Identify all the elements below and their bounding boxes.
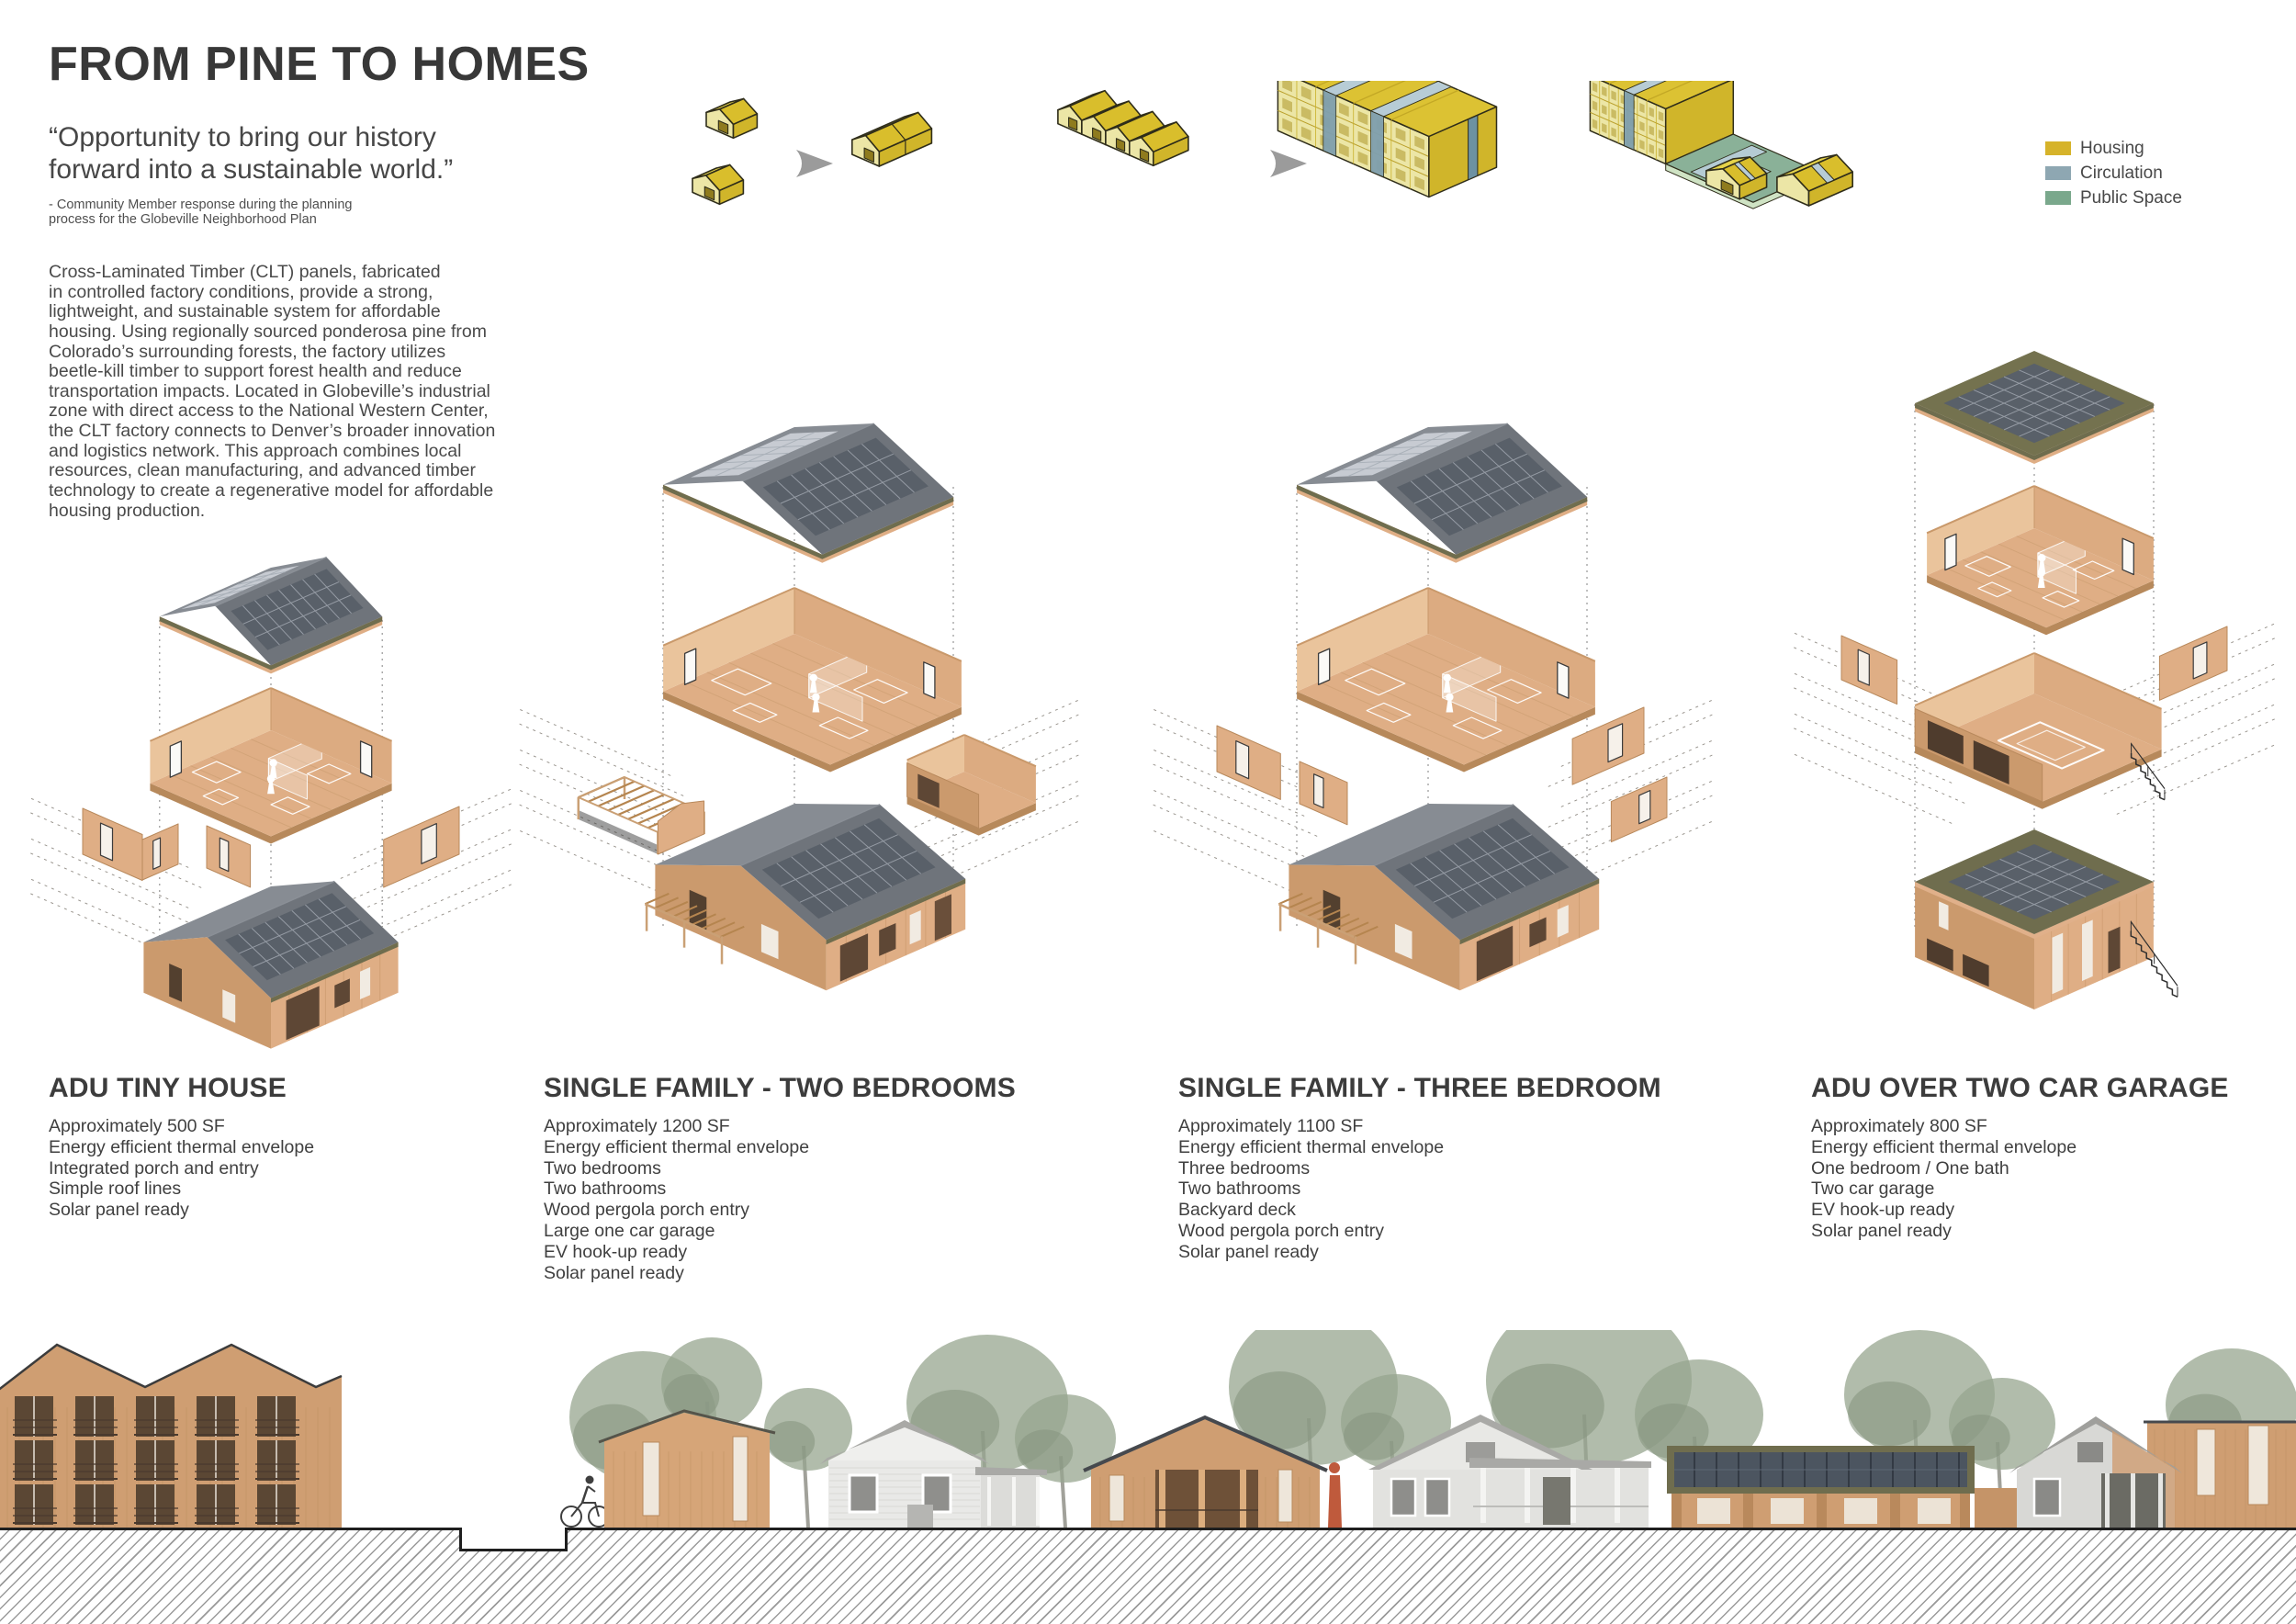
- wall-panel: [1300, 761, 1347, 825]
- window-slot: [1844, 1498, 1877, 1524]
- spec-line: Energy efficient thermal envelope: [1811, 1138, 2077, 1158]
- spec-line: Integrated porch and entry: [49, 1159, 314, 1179]
- community-quote: “Opportunity to bring our history forwar…: [49, 121, 453, 186]
- window: [1391, 1479, 1415, 1516]
- spec-line: Wood pergola porch entry: [544, 1201, 809, 1221]
- arrow-icon: [796, 150, 833, 177]
- spec-line: EV hook-up ready: [544, 1243, 809, 1263]
- flat-roof-panel: [1915, 351, 2154, 464]
- spec-line: Approximately 800 SF: [1811, 1117, 2077, 1137]
- roof-panel: [1297, 423, 1587, 563]
- door: [1543, 1477, 1570, 1525]
- spec-line: Approximately 1100 SF: [1178, 1117, 1444, 1137]
- tree-icon: [766, 1421, 815, 1462]
- heading-adu-over-two-car-garage: ADU OVER TWO CAR GARAGE: [1811, 1073, 2229, 1104]
- floor-module: [1297, 588, 1595, 773]
- cyclist: [561, 1476, 609, 1528]
- floor-module: [150, 688, 391, 844]
- spec-line: Solar panel ready: [1811, 1222, 2077, 1242]
- wall-panel: [142, 824, 178, 880]
- window: [1425, 1479, 1449, 1516]
- circulation-swatch-icon: [2045, 166, 2071, 180]
- legend-label: Circulation: [2080, 164, 2163, 184]
- exploded-axon-single-family-three-bedroom: [1153, 413, 1713, 1056]
- massing-house: [706, 99, 757, 139]
- garage-module: [1915, 653, 2165, 809]
- window: [2034, 1479, 2060, 1516]
- heading-single-family-three-bedroom: SINGLE FAMILY - THREE BEDROOM: [1178, 1073, 1661, 1104]
- wall-panel: [384, 806, 459, 887]
- spec-line: Three bedrooms: [1178, 1159, 1444, 1179]
- wall-panel: [207, 826, 251, 887]
- heading-single-family-two-bedrooms: SINGLE FAMILY - TWO BEDROOMS: [544, 1073, 1016, 1104]
- assembled-garage-adu: [1915, 829, 2178, 1009]
- legend-label: Public Space: [2080, 188, 2182, 209]
- spec-line: Energy efficient thermal envelope: [1178, 1138, 1444, 1158]
- window-slot: [1697, 1498, 1730, 1524]
- presentation-board: FROM PINE TO HOMES “Opportunity to bring…: [0, 0, 2296, 1624]
- exploded-axon-adu-over-two-car-garage: [1791, 340, 2278, 1047]
- specs-adu-tiny-house: Approximately 500 SF Energy efficient th…: [49, 1117, 314, 1222]
- window-slot: [2197, 1429, 2215, 1495]
- pergola-porch-module: [579, 777, 704, 854]
- roof-panel: [663, 423, 953, 563]
- wall-panel: [1841, 636, 1897, 705]
- assembled-house: [1278, 804, 1599, 990]
- window-slot: [1278, 1470, 1292, 1522]
- garage-room-module: [907, 735, 1036, 836]
- massing-block: [1277, 81, 1496, 197]
- window-slot: [1109, 1475, 1124, 1521]
- spec-line: Large one car garage: [544, 1222, 809, 1242]
- legend-row-housing: Housing: [2045, 136, 2182, 161]
- spec-line: Energy efficient thermal envelope: [544, 1138, 809, 1158]
- spec-line: Solar panel ready: [1178, 1243, 1444, 1263]
- window: [850, 1475, 877, 1512]
- page-title: FROM PINE TO HOMES: [49, 37, 590, 92]
- floor-module: [1927, 486, 2154, 635]
- spec-line: Solar panel ready: [49, 1201, 314, 1221]
- specs-adu-over-two-car-garage: Approximately 800 SF Energy efficient th…: [1811, 1117, 2077, 1243]
- massing-sequence-diagram: [675, 81, 1961, 301]
- tree-icon: [1848, 1382, 1930, 1446]
- spec-line: Approximately 1200 SF: [544, 1117, 809, 1137]
- ground-hatch: [0, 1528, 2296, 1624]
- spec-line: Backyard deck: [1178, 1201, 1444, 1221]
- person-figure: [1328, 1462, 1342, 1528]
- window-slot: [1771, 1498, 1804, 1524]
- spec-line: Solar panel ready: [544, 1264, 809, 1284]
- spec-line: Two bathrooms: [544, 1179, 809, 1200]
- wall-panel: [83, 808, 142, 881]
- spec-line: Wood pergola porch entry: [1178, 1222, 1444, 1242]
- legend-row-circulation: Circulation: [2045, 161, 2182, 186]
- public-space-swatch-icon: [2045, 191, 2071, 205]
- spec-line: Approximately 500 SF: [49, 1117, 314, 1137]
- window-slot: [1918, 1498, 1951, 1524]
- spec-line: One bedroom / One bath: [1811, 1159, 2077, 1179]
- housing-swatch-icon: [2045, 141, 2071, 155]
- massing-house: [852, 113, 932, 167]
- spec-line: EV hook-up ready: [1811, 1201, 2077, 1221]
- spec-line: Two bedrooms: [544, 1159, 809, 1179]
- window-slot: [2248, 1426, 2268, 1505]
- heading-adu-tiny-house: ADU TINY HOUSE: [49, 1073, 287, 1104]
- ac-unit: [907, 1505, 933, 1528]
- clt-description: Cross-Laminated Timber (CLT) panels, fab…: [49, 263, 545, 521]
- legend-label: Housing: [2080, 139, 2144, 159]
- wall-panel: [2159, 626, 2227, 700]
- specs-single-family-three-bedroom: Approximately 1100 SF Energy efficient t…: [1178, 1117, 1444, 1264]
- attic-window: [2077, 1442, 2103, 1462]
- floor-module: [663, 588, 962, 773]
- quote-attribution: - Community Member response during the p…: [49, 198, 352, 228]
- legend-row-public-space: Public Space: [2045, 186, 2182, 210]
- exploded-axon-adu-tiny-house: [28, 551, 514, 1066]
- spec-line: Two car garage: [1811, 1179, 2077, 1200]
- wall-panel: [1611, 777, 1667, 842]
- massing-house: [692, 165, 743, 205]
- spec-line: Simple roof lines: [49, 1179, 314, 1200]
- flat-solar-building: [1667, 1446, 2025, 1528]
- roof-panel: [160, 558, 382, 674]
- assembled-house: [143, 881, 398, 1048]
- exploded-axon-single-family-two-bedrooms: [519, 413, 1079, 1056]
- specs-single-family-two-bedrooms: Approximately 1200 SF Energy efficient t…: [544, 1117, 809, 1285]
- tree-icon: [1018, 1429, 1074, 1473]
- spec-line: Energy efficient thermal envelope: [49, 1138, 314, 1158]
- legend: Housing Circulation Public Space: [2045, 136, 2182, 210]
- street-elevation: [0, 1330, 2296, 1532]
- clt-apartment-building: [0, 1345, 342, 1528]
- spec-line: Two bathrooms: [1178, 1179, 1444, 1200]
- window-slot: [643, 1442, 659, 1516]
- arrow-icon: [1270, 150, 1307, 177]
- window-slot: [733, 1437, 748, 1521]
- tree-icon: [1344, 1413, 1404, 1460]
- wall-panel: [1217, 726, 1280, 799]
